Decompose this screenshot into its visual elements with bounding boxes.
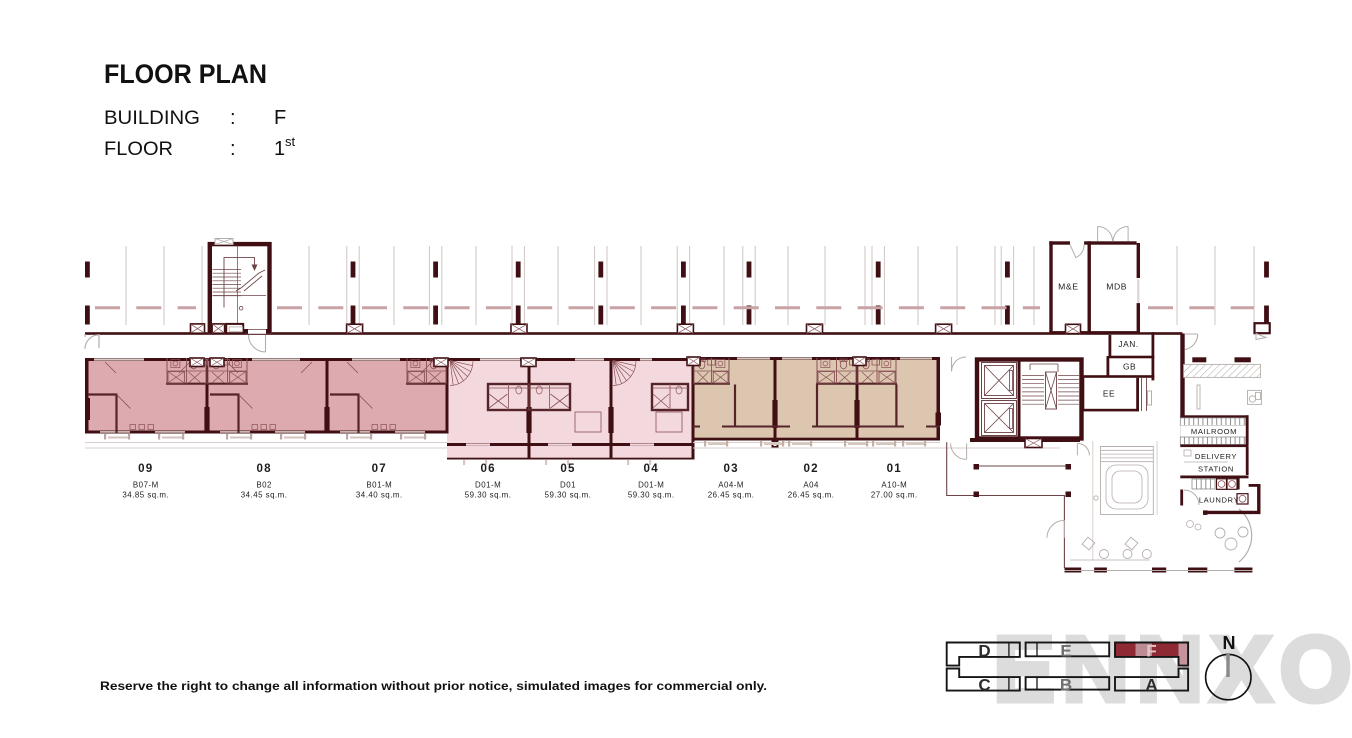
svg-text:34.45 sq.m.: 34.45 sq.m. (241, 490, 288, 499)
svg-text:GB: GB (1123, 362, 1136, 372)
svg-text:A04: A04 (803, 480, 819, 489)
svg-text:MDB: MDB (1106, 281, 1127, 291)
svg-text:08: 08 (256, 462, 271, 475)
svg-text:F: F (1146, 642, 1156, 661)
svg-text:D01-M: D01-M (475, 480, 501, 489)
svg-text:st: st (285, 134, 296, 149)
svg-text:1: 1 (274, 138, 285, 160)
svg-text:01: 01 (887, 462, 902, 475)
svg-text::: : (230, 107, 236, 129)
svg-text:09: 09 (138, 462, 153, 475)
svg-text:D01: D01 (560, 480, 576, 489)
svg-text:D01-M: D01-M (638, 480, 664, 489)
svg-text:MAILROOM: MAILROOM (1191, 427, 1237, 436)
svg-text:07: 07 (372, 462, 387, 475)
svg-text:26.45 sq.m.: 26.45 sq.m. (708, 490, 755, 499)
svg-text:B02: B02 (256, 480, 272, 489)
svg-text::: : (230, 138, 236, 160)
svg-text:27.00 sq.m.: 27.00 sq.m. (871, 490, 918, 499)
svg-text:JAN.: JAN. (1118, 339, 1138, 349)
svg-text:BUILDING: BUILDING (104, 107, 200, 129)
svg-text:59.30 sq.m.: 59.30 sq.m. (545, 490, 592, 499)
svg-text:E: E (1060, 642, 1071, 661)
svg-text:34.85 sq.m.: 34.85 sq.m. (122, 490, 169, 499)
svg-text:F: F (274, 107, 286, 129)
svg-text:ENNXO: ENNXO (993, 617, 1352, 721)
svg-text:B01-M: B01-M (366, 480, 392, 489)
svg-text:06: 06 (480, 462, 495, 475)
svg-text:B07-M: B07-M (133, 480, 159, 489)
svg-text:EE: EE (1103, 389, 1115, 399)
svg-text:M&E: M&E (1058, 281, 1078, 291)
svg-text:05: 05 (560, 462, 575, 475)
svg-text:C: C (978, 676, 990, 695)
svg-text:N: N (1223, 633, 1236, 653)
svg-text:59.30 sq.m.: 59.30 sq.m. (465, 490, 512, 499)
svg-text:B: B (1060, 676, 1072, 695)
svg-text:04: 04 (644, 462, 659, 475)
svg-text:STATION: STATION (1198, 464, 1234, 473)
svg-text:26.45 sq.m.: 26.45 sq.m. (788, 490, 835, 499)
svg-text:03: 03 (723, 462, 738, 475)
svg-text:A10-M: A10-M (881, 480, 907, 489)
svg-text:FLOOR PLAN: FLOOR PLAN (104, 59, 267, 89)
svg-text:D: D (978, 642, 990, 661)
svg-text:A: A (1145, 676, 1157, 695)
svg-text:34.40 sq.m.: 34.40 sq.m. (356, 490, 403, 499)
svg-text:A04-M: A04-M (718, 480, 744, 489)
svg-text:FLOOR: FLOOR (104, 138, 173, 160)
svg-text:59.30 sq.m.: 59.30 sq.m. (628, 490, 675, 499)
svg-text:02: 02 (803, 462, 818, 475)
svg-text:DELIVERY: DELIVERY (1195, 452, 1237, 461)
svg-text:LAUNDRY: LAUNDRY (1199, 495, 1239, 504)
svg-text:Reserve the right to change al: Reserve the right to change all informat… (100, 679, 767, 693)
